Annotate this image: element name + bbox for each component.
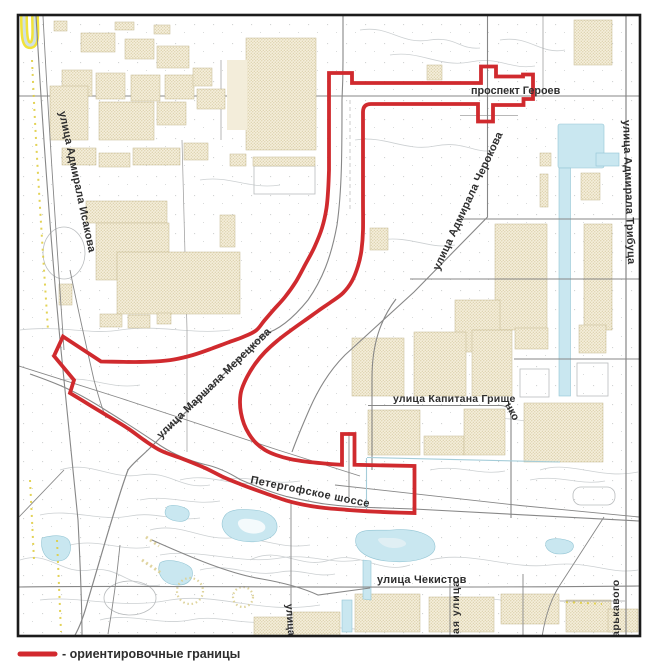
svg-text:проспект Героев: проспект Героев bbox=[471, 85, 561, 97]
svg-text:улица Капитана Грище: улица Капитана Грище bbox=[393, 393, 516, 405]
svg-text:арькавого: арькавого bbox=[610, 579, 622, 637]
svg-text:улица: улица bbox=[283, 603, 297, 636]
svg-text:- ориентировочные границы: - ориентировочные границы bbox=[62, 647, 240, 661]
svg-text:ая улица: ая улица bbox=[450, 580, 462, 634]
